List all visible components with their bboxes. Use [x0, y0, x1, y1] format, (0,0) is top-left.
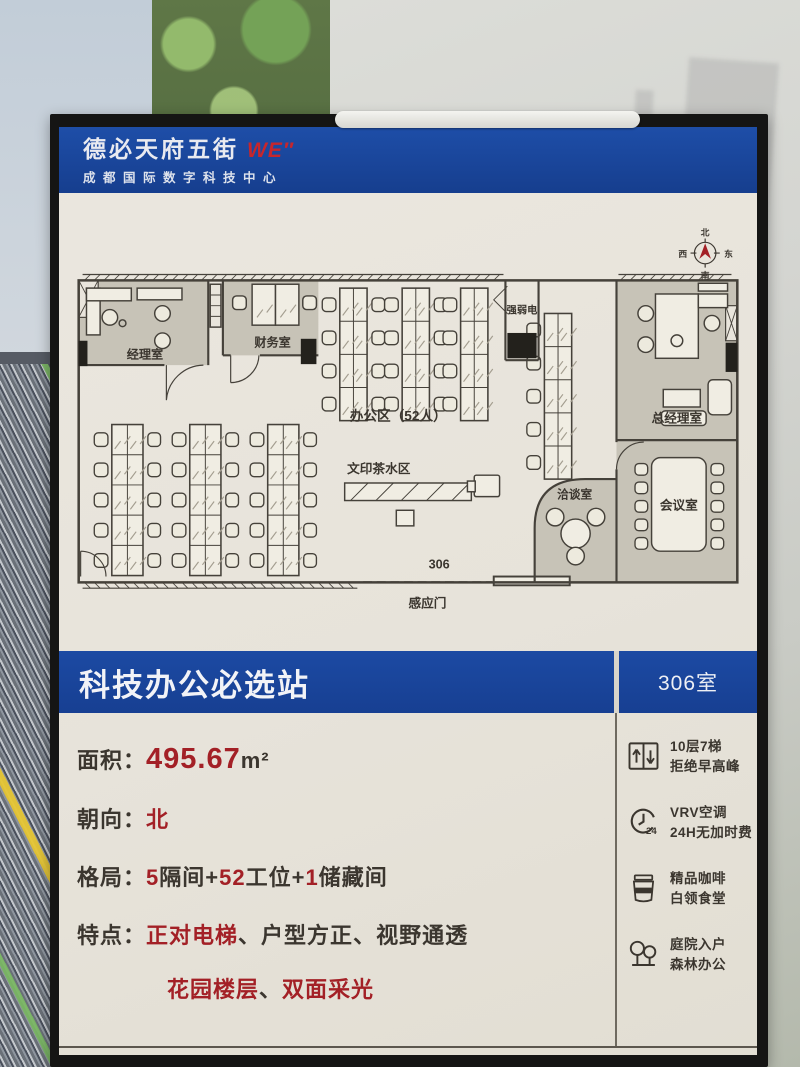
amenity-coffee: COFFEE 精品咖啡白领食堂 — [617, 869, 757, 908]
property-poster: 德必天府五街 WE″ 成都国际数字科技中心 — [50, 114, 768, 1067]
svg-text:24: 24 — [646, 826, 657, 837]
label-negotiation: 洽谈室 — [557, 488, 592, 502]
label-utility: 强弱电 — [507, 303, 538, 316]
amenities-column: 10层7梯拒绝早高峰 24 VRV空调24H无加时费 COFFE — [615, 713, 757, 1046]
amenity-hvac: 24 VRV空调24H无加时费 — [617, 803, 757, 842]
label-entrance: 感应门 — [409, 596, 447, 611]
label-open-office: 办公区（52人） — [350, 408, 447, 424]
floor-plan: 北 东 南 西 经理室 财务室 强弱电 总经理室 会议室 洽谈室 办公区（52人… — [67, 201, 749, 651]
title-bar: 科技办公必选站 306室 — [59, 651, 757, 713]
spec-facing: 朝向：北 — [77, 802, 615, 834]
amenity-garden: 庭院入户森林办公 — [617, 935, 757, 974]
poster-top-clip — [335, 111, 640, 128]
svg-text:北: 北 — [701, 227, 710, 238]
brand-logo-we: WE″ — [247, 140, 294, 161]
svg-text:南: 南 — [701, 269, 710, 280]
coffee-icon: COFFEE — [626, 871, 661, 906]
brand-name: 德必天府五街 — [83, 138, 239, 161]
spec-area: 面积：495.67m² — [77, 743, 615, 776]
elevator-icon — [626, 739, 661, 774]
brand-subtitle: 成都国际数字科技中心 — [83, 167, 757, 186]
trees-icon — [626, 937, 661, 972]
clock-24-icon: 24 — [626, 805, 661, 840]
spec-features-line1: 特点：正对电梯、户型方正、视野通透 — [77, 918, 615, 950]
label-manager: 经理室 — [127, 346, 163, 361]
details-section: 面积：495.67m² 朝向：北 格局：5隔间+52工位+1储藏间 特点：正对电… — [59, 713, 757, 1048]
floor-plan-area: 北 东 南 西 经理室 财务室 强弱电 总经理室 会议室 洽谈室 办公区（52人… — [59, 193, 757, 651]
spec-layout: 格局：5隔间+52工位+1储藏间 — [77, 860, 615, 892]
page-title: 科技办公必选站 — [59, 651, 614, 713]
label-room-number: 306 — [429, 558, 450, 572]
specs-column: 面积：495.67m² 朝向：北 格局：5隔间+52工位+1储藏间 特点：正对电… — [59, 713, 615, 1046]
svg-text:COFFEE: COFFEE — [634, 888, 653, 893]
room-number-badge: 306室 — [619, 651, 757, 713]
amenity-elevator: 10层7梯拒绝早高峰 — [617, 737, 757, 776]
label-print-tea: 文印茶水区 — [347, 461, 411, 476]
svg-text:东: 东 — [724, 248, 733, 259]
svg-text:西: 西 — [678, 249, 687, 259]
brand-header: 德必天府五街 WE″ 成都国际数字科技中心 — [59, 127, 757, 193]
label-finance: 财务室 — [253, 335, 290, 350]
label-gm: 总经理室 — [652, 411, 703, 426]
photo-of-floorplan-poster: { "header": { "brand": "德必天府五街", "brand_… — [0, 0, 800, 1067]
compass-icon: 北 东 南 西 — [678, 227, 733, 281]
spec-features-line2: 花园楼层、双面采光 — [77, 972, 615, 1004]
label-meeting: 会议室 — [660, 497, 698, 512]
